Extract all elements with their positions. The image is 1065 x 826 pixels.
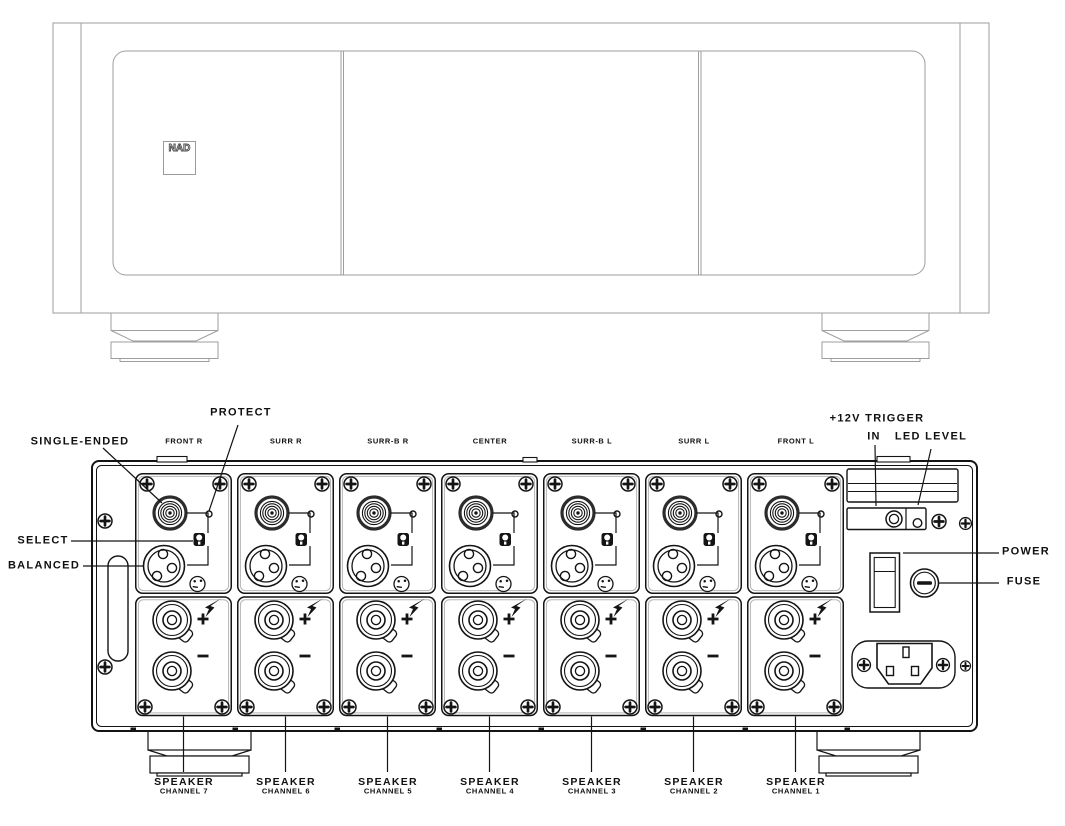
- label-balanced: BALANCED: [8, 561, 80, 572]
- label-speaker-6-channel: CHANNEL 6: [262, 787, 310, 795]
- label-channel-surr-b-l: SURR-B L: [572, 437, 613, 445]
- nad-logo: NAD: [163, 141, 196, 175]
- label-channel-center: CENTER: [473, 437, 507, 445]
- label-protect: PROTECT: [210, 408, 272, 419]
- label-speaker-7-channel: CHANNEL 7: [160, 787, 208, 795]
- label-channel-surr-l: SURR L: [678, 437, 710, 445]
- label-speaker-1-channel: CHANNEL 1: [772, 787, 820, 795]
- rear-view: [71, 425, 999, 776]
- label-speaker-5-channel: CHANNEL 5: [364, 787, 412, 795]
- label-channel-front-l: FRONT L: [778, 437, 815, 445]
- label-channel-surr-b-r: SURR-B R: [367, 437, 408, 445]
- nad-logo-text: NAD: [164, 143, 195, 154]
- label-speaker-3-channel: CHANNEL 3: [568, 787, 616, 795]
- label-channel-front-r: FRONT R: [165, 437, 203, 445]
- label-single-ended: SINGLE-ENDED: [31, 437, 130, 448]
- label-speaker-2-channel: CHANNEL 2: [670, 787, 718, 795]
- label-fuse: FUSE: [1007, 577, 1042, 588]
- label-trigger-line2: IN: [867, 432, 881, 443]
- label-trigger-line1: +12V TRIGGER: [830, 414, 925, 425]
- amplifier-diagram: NAD FRONT R SURR R SURR-B R CENTER SURR-…: [0, 0, 1065, 826]
- label-led-level: LED LEVEL: [895, 432, 967, 443]
- label-speaker-4-channel: CHANNEL 4: [466, 787, 514, 795]
- label-select: SELECT: [17, 536, 68, 547]
- label-power: POWER: [1002, 547, 1050, 558]
- label-channel-surr-r: SURR R: [270, 437, 302, 445]
- front-view: [53, 23, 989, 362]
